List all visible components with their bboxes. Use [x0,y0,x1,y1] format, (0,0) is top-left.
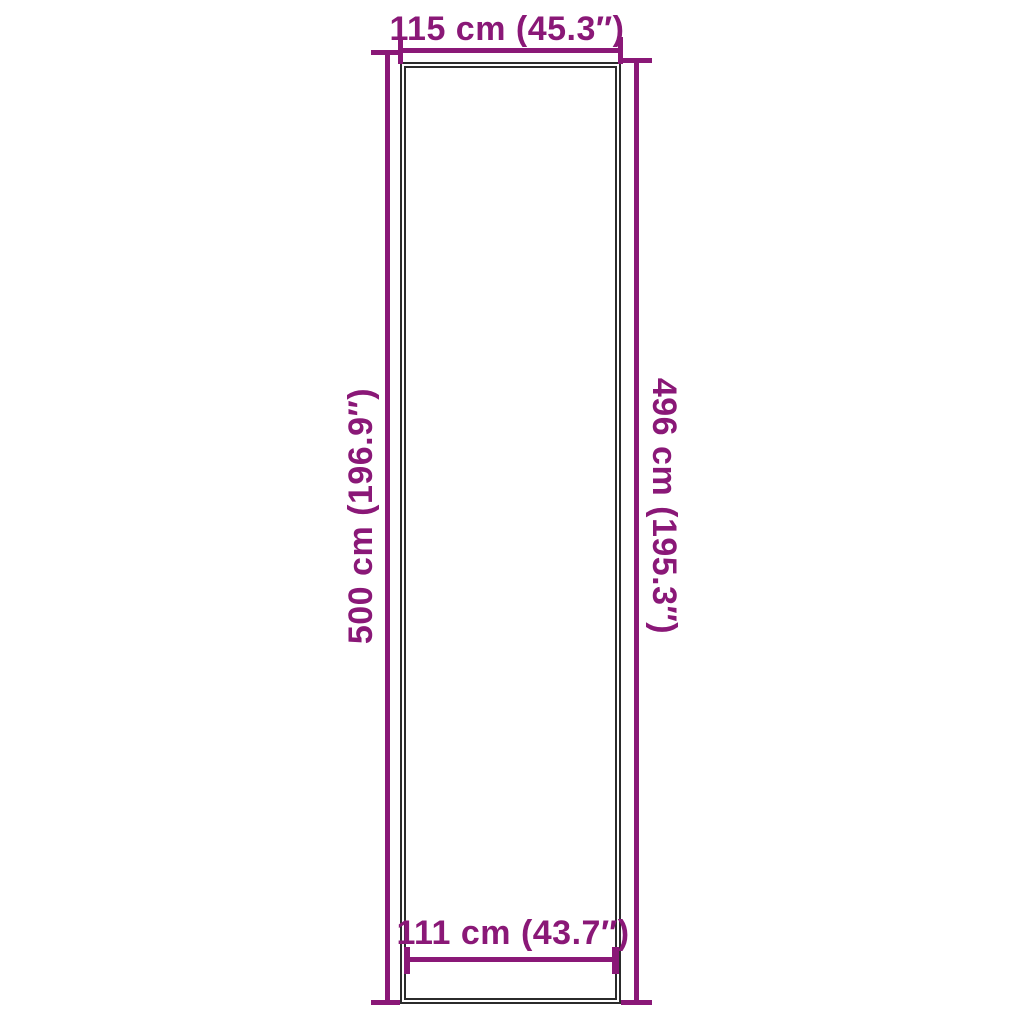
dimension-diagram: 115 cm (45.3″) 500 cm (196.9″) 496 cm (1… [0,0,1024,1024]
dimension-label-bottom-width: 111 cm (43.7″) [396,916,629,950]
dimension-tick-bottom-left [404,947,410,974]
dimension-label-top-width: 115 cm (45.3″) [390,12,625,46]
dimension-tick-right-top [621,58,652,63]
dimension-line-bottom [406,957,618,962]
dimension-tick-bottom-right [612,947,619,974]
dimension-label-left-height: 500 cm (196.9″) [344,388,378,644]
dimension-tick-left-bottom [371,1000,400,1005]
dimension-line-left [385,50,390,1005]
dimension-label-right-height: 496 cm (195.3″) [647,378,681,634]
dimension-tick-left-top [371,50,400,55]
dimension-line-top [399,48,623,53]
dimension-tick-right-bottom [621,1000,652,1005]
dimension-line-right [634,58,639,1005]
product-outline-inner [404,66,617,1000]
product-outline [400,62,621,1004]
